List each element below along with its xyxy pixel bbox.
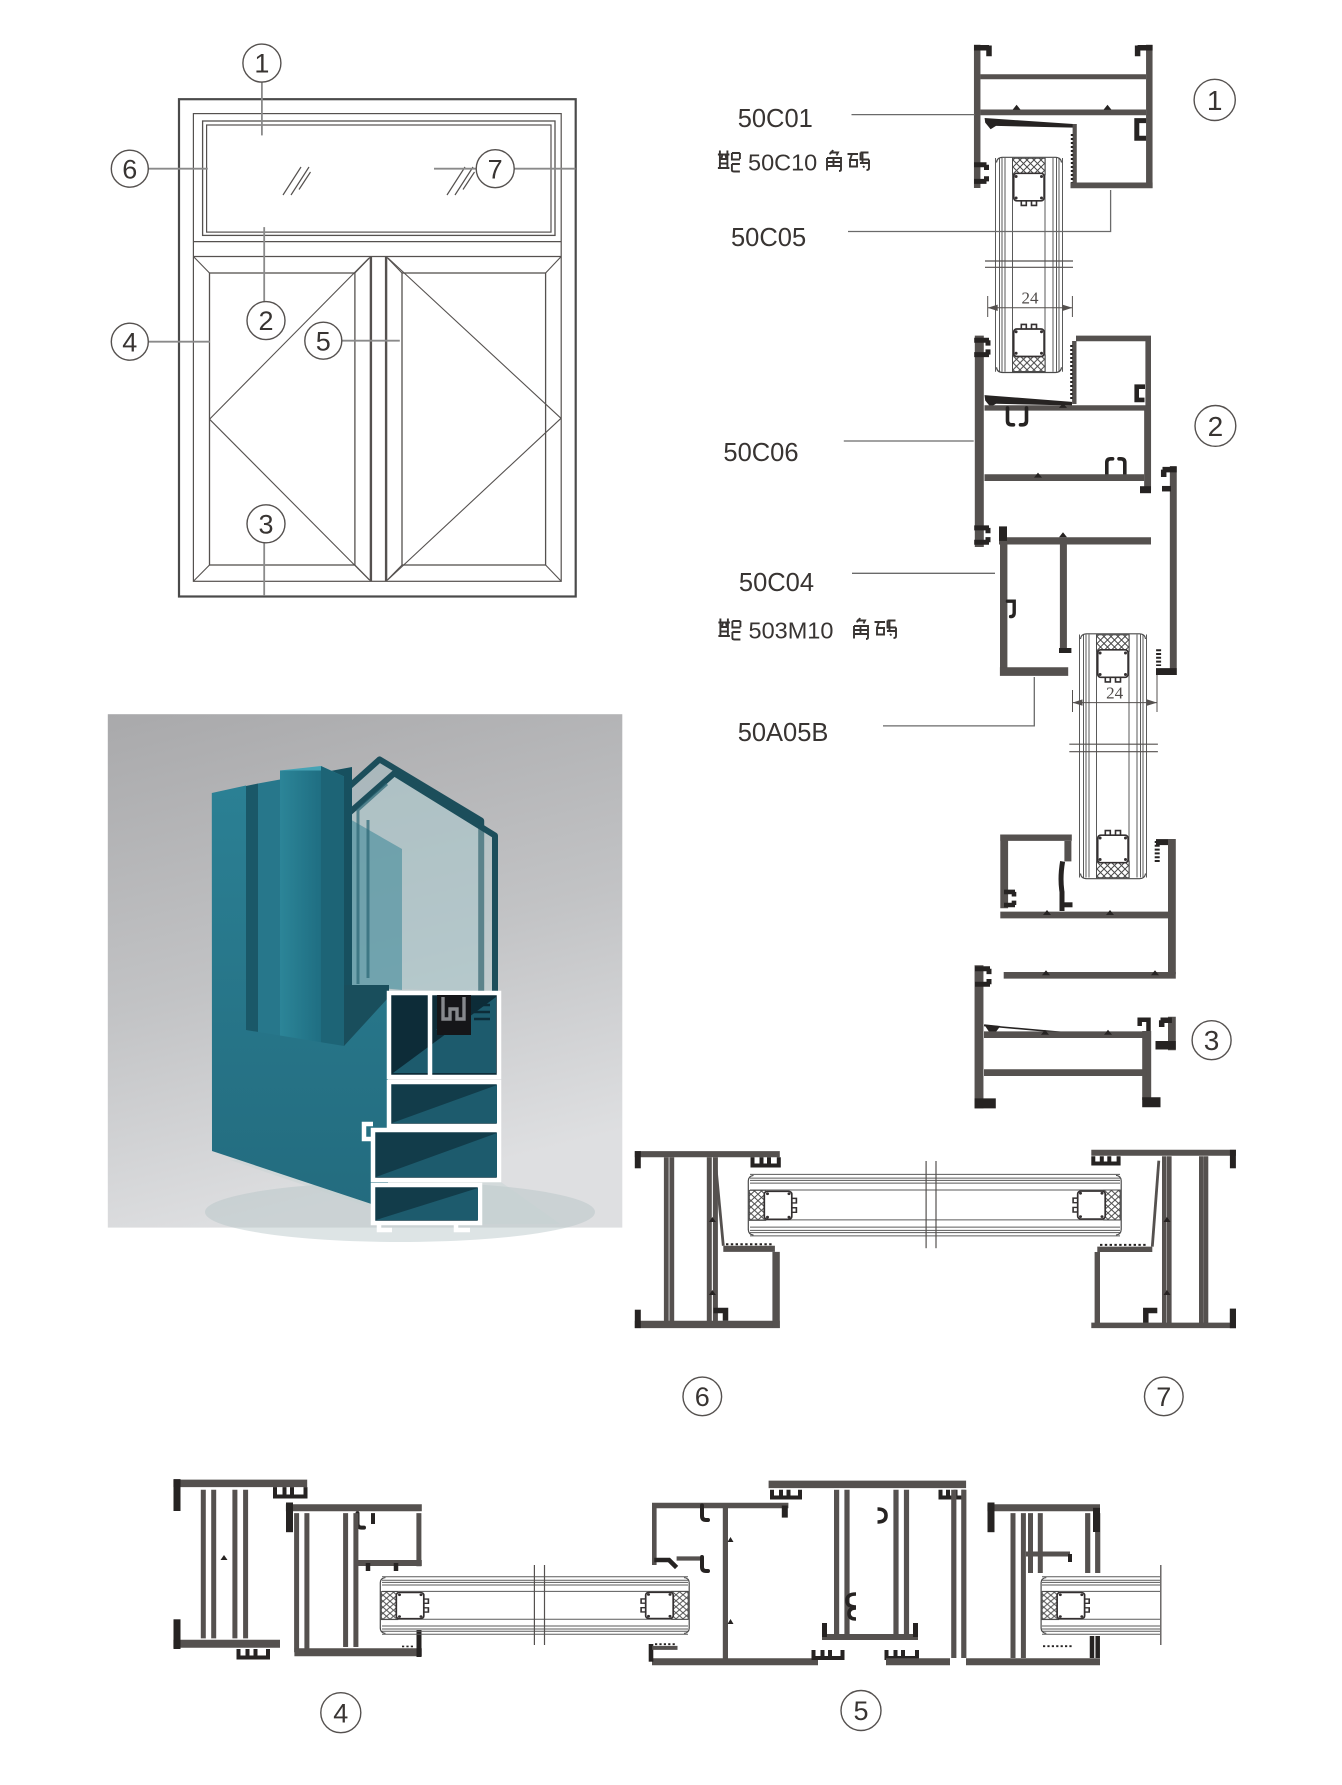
svg-text:5: 5	[853, 1696, 868, 1726]
svg-text:1: 1	[254, 49, 269, 79]
svg-text:7: 7	[488, 154, 503, 184]
svg-text:2: 2	[1208, 411, 1224, 442]
svg-text:24: 24	[1106, 683, 1124, 702]
svg-text:3: 3	[1204, 1025, 1220, 1056]
svg-text:2: 2	[258, 306, 273, 336]
svg-text:7: 7	[1156, 1382, 1171, 1412]
svg-text:3: 3	[258, 509, 273, 539]
svg-text:4: 4	[333, 1698, 348, 1728]
svg-text:50C04: 50C04	[739, 569, 814, 597]
svg-text:5: 5	[316, 326, 331, 356]
svg-text:50C06: 50C06	[723, 439, 798, 467]
svg-text:4: 4	[122, 327, 137, 357]
svg-text:6: 6	[695, 1382, 710, 1412]
svg-text:50C05: 50C05	[731, 224, 806, 252]
svg-text:1: 1	[1207, 85, 1223, 116]
svg-text:24: 24	[1022, 289, 1040, 308]
svg-text:503M10: 503M10	[749, 618, 834, 644]
svg-text:50C10: 50C10	[748, 150, 817, 176]
svg-text:50A05B: 50A05B	[738, 719, 829, 747]
svg-text:50C01: 50C01	[738, 105, 813, 133]
svg-text:6: 6	[122, 154, 137, 184]
